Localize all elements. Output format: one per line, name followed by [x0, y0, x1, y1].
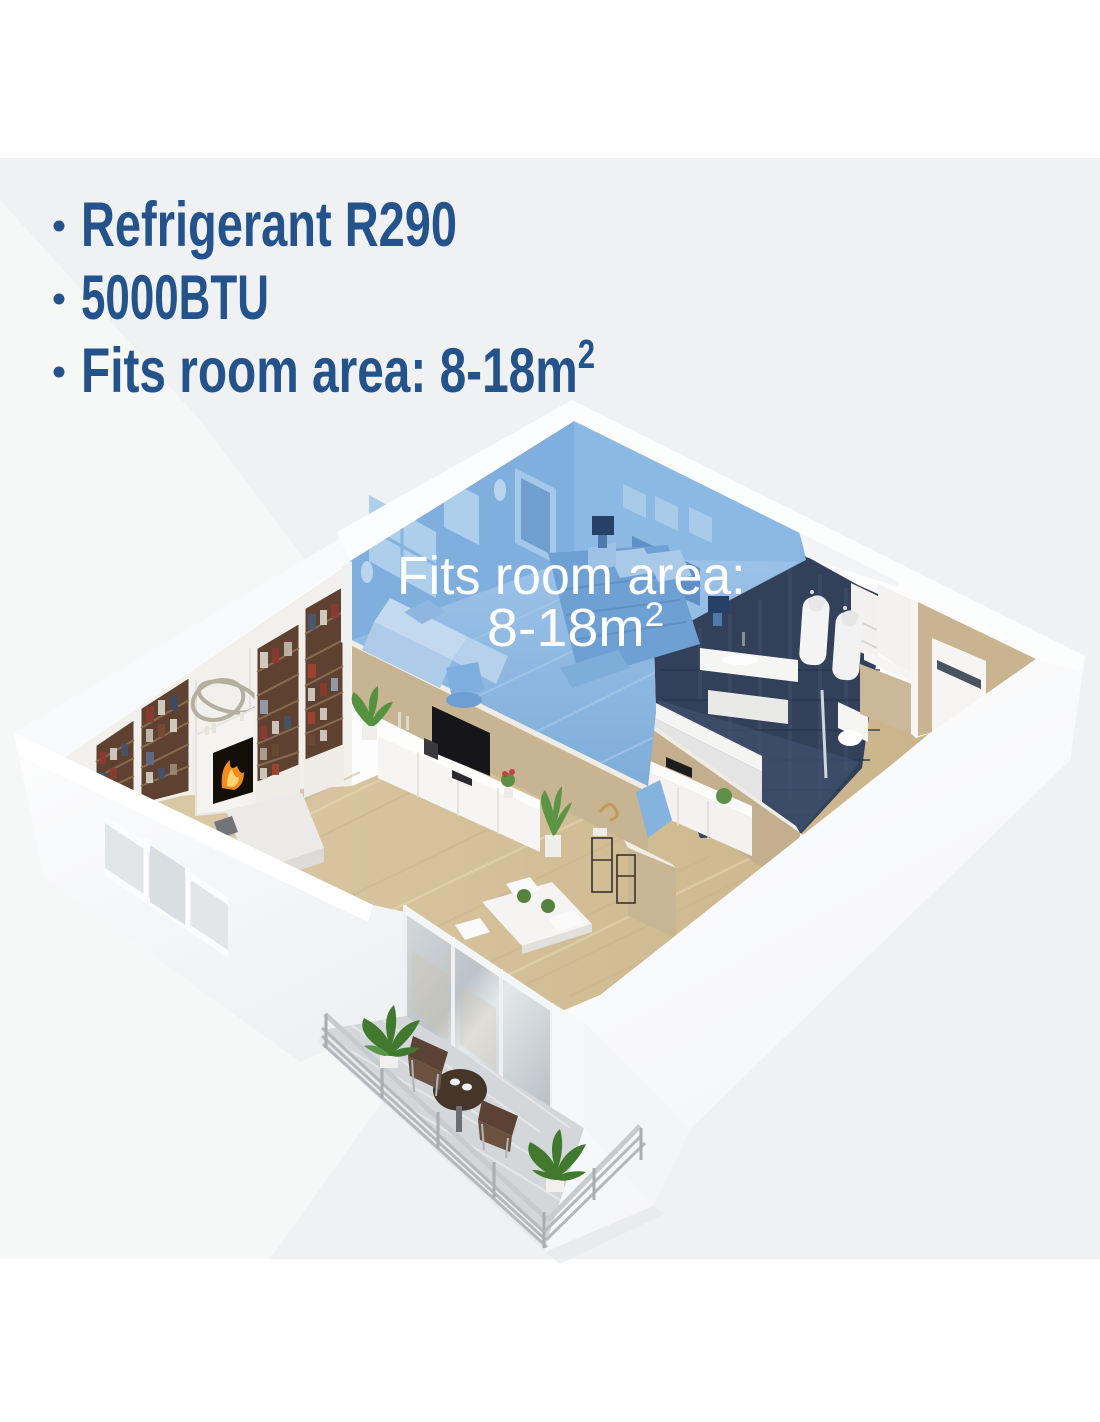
- svg-text:Refrigerant R290: Refrigerant R290: [81, 189, 457, 259]
- svg-text:8-18m2: 8-18m2: [487, 596, 664, 657]
- svg-text:5000BTU: 5000BTU: [81, 262, 269, 333]
- svg-text:Fits room area: 8-18m2: Fits room area: 8-18m2: [81, 331, 595, 406]
